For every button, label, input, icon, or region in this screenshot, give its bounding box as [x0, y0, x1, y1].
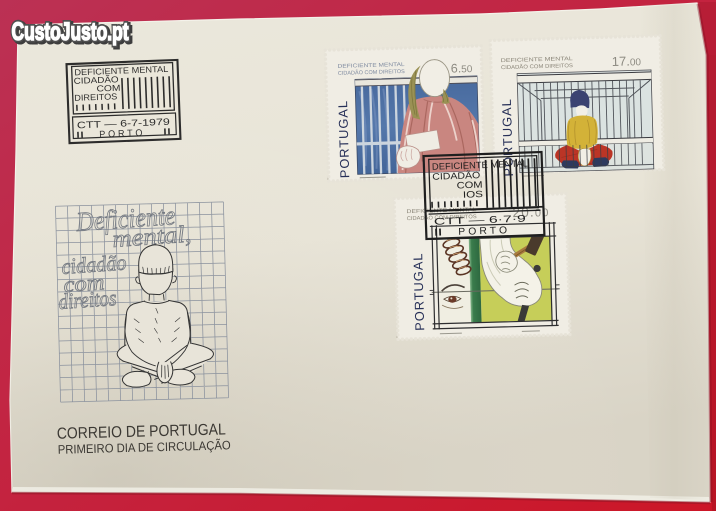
svg-text:PORTUGAL: PORTUGAL [335, 100, 352, 179]
svg-text:PORTO: PORTO [458, 225, 510, 238]
svg-text:PORTUGAL: PORTUGAL [410, 252, 427, 331]
svg-text:PORTO: PORTO [99, 128, 145, 141]
svg-text:CustoJusto.pt: CustoJusto.pt [12, 18, 129, 46]
svg-text:DIREITOS: DIREITOS [74, 91, 118, 103]
svg-text:direitos: direitos [58, 285, 118, 314]
svg-text:IOS: IOS [463, 189, 483, 200]
